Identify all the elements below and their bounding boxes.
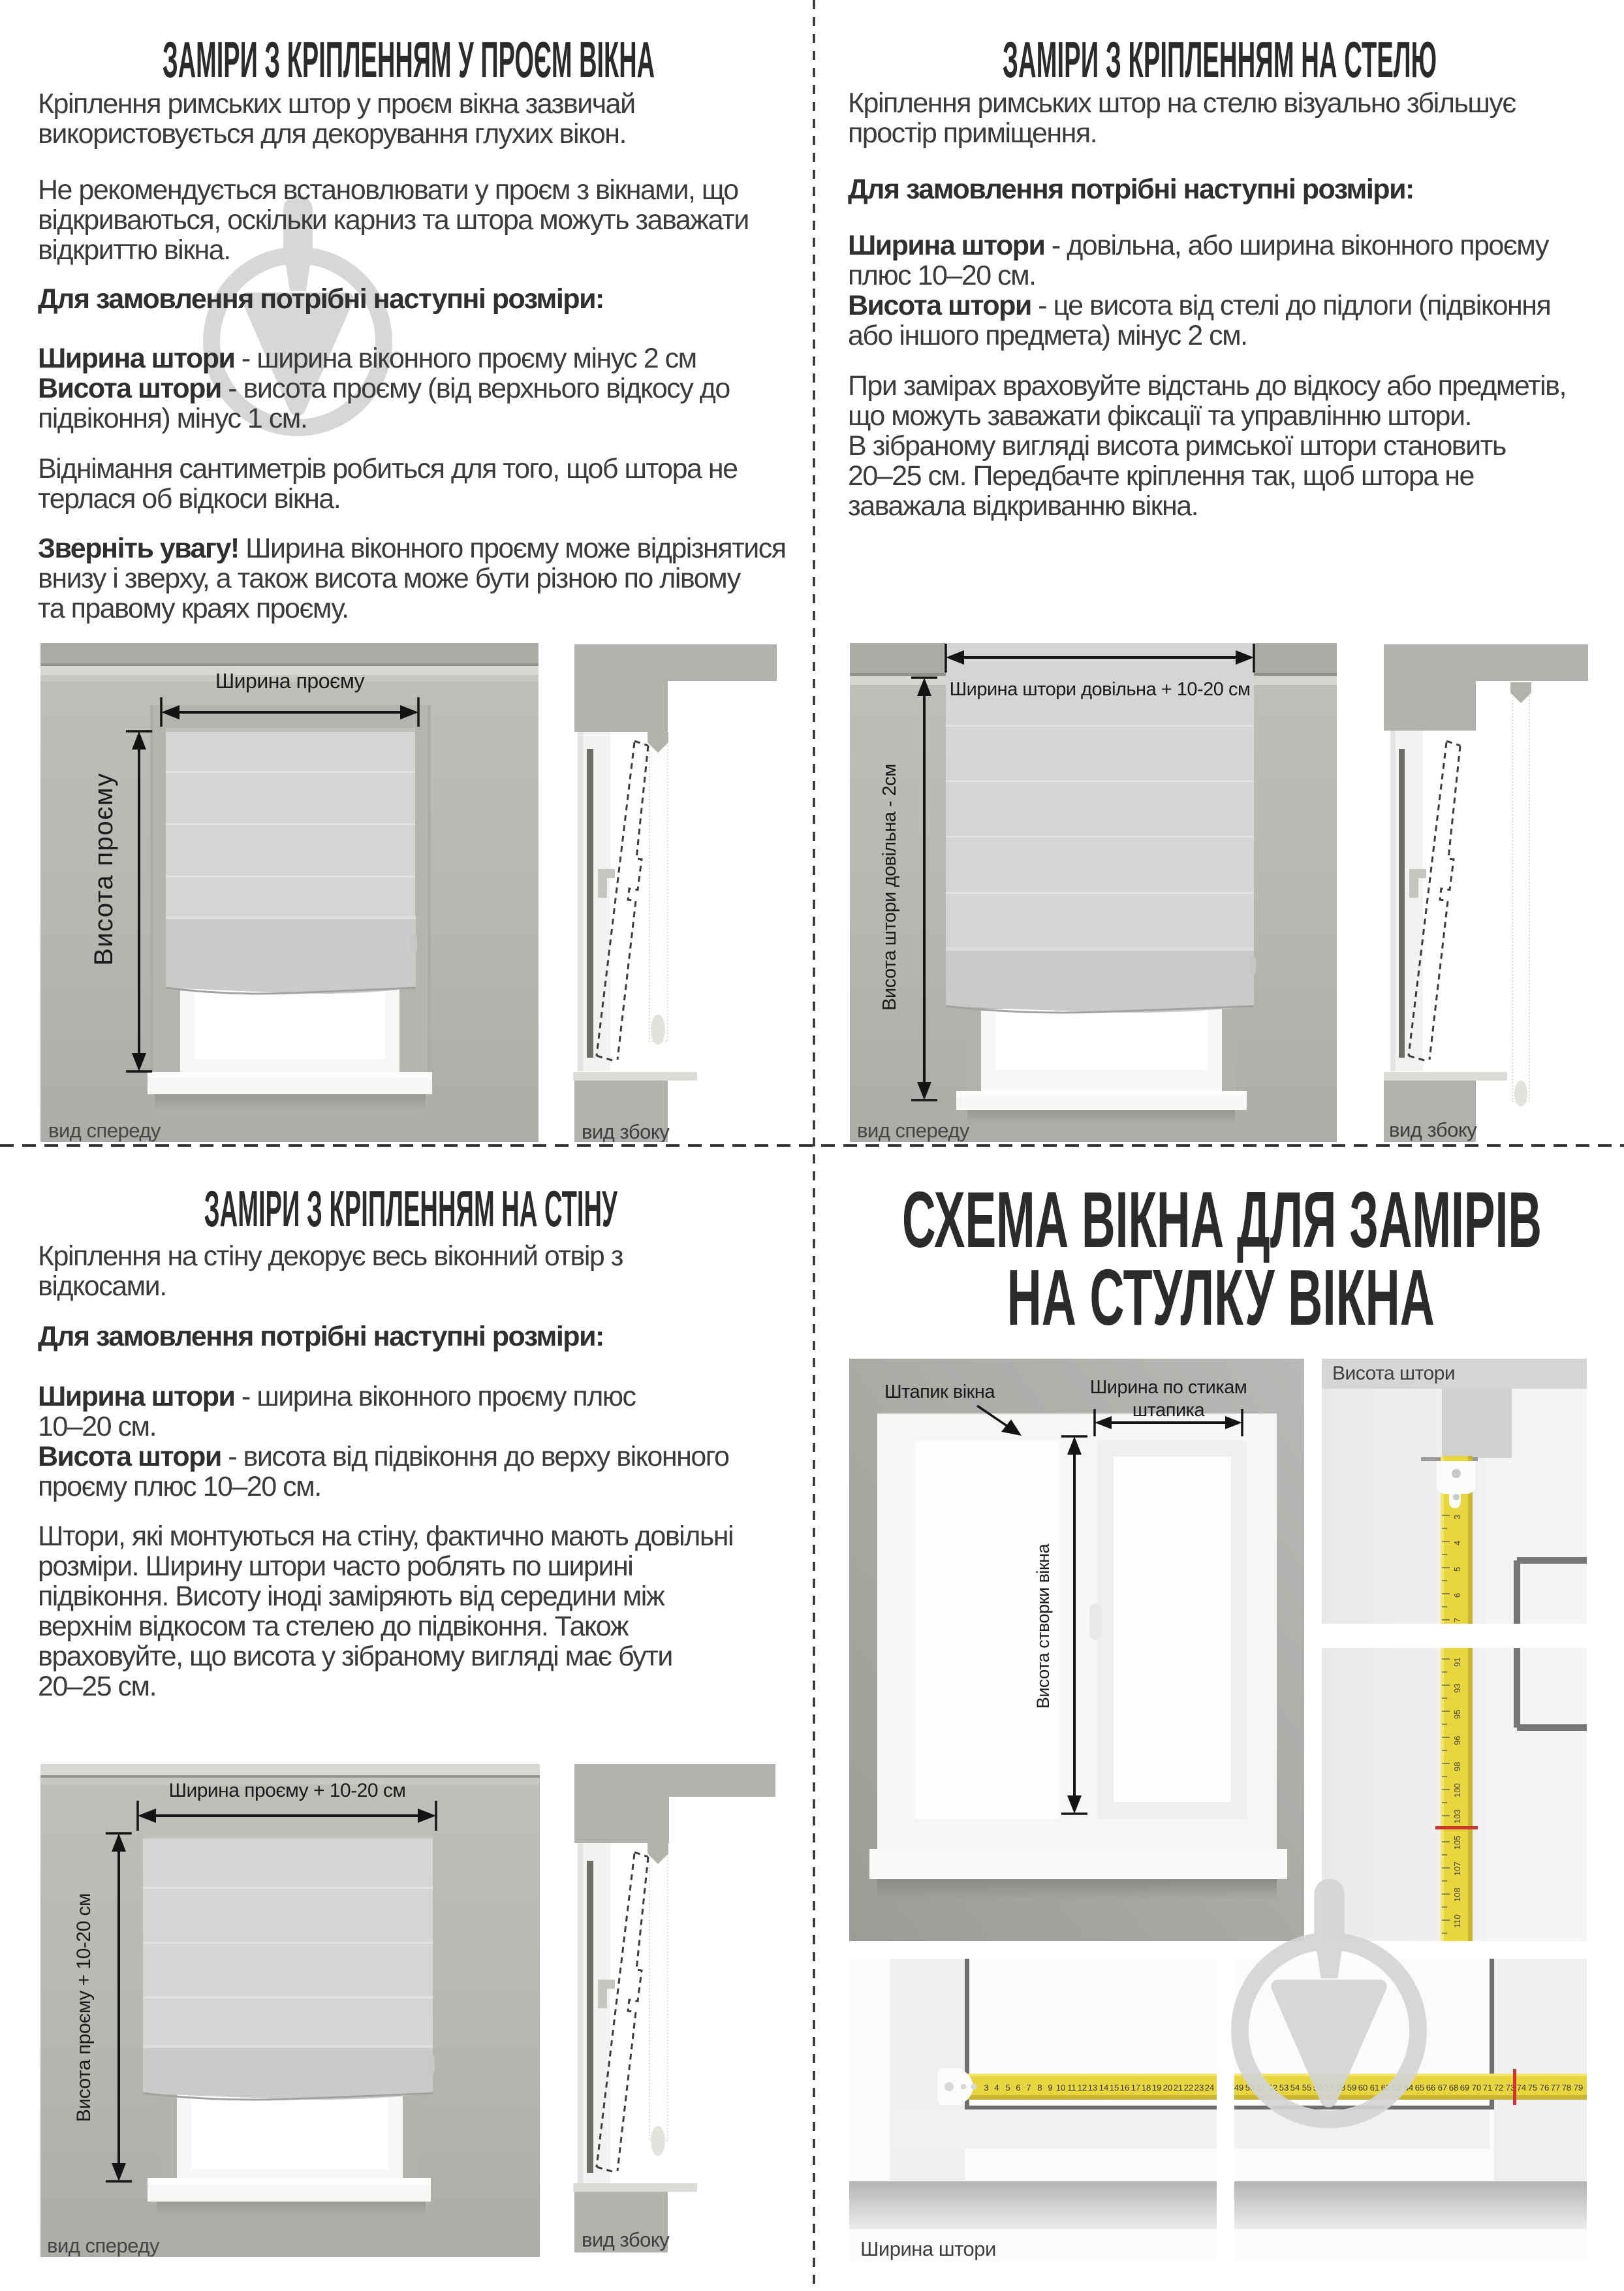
svg-text:12: 12 — [1078, 2083, 1087, 2093]
svg-text:вид спереду: вид спереду — [47, 2234, 160, 2257]
svg-text:5: 5 — [1005, 2083, 1010, 2093]
svg-text:10: 10 — [1056, 2083, 1065, 2093]
svg-text:22: 22 — [1184, 2083, 1193, 2093]
svg-text:Штапик вікна: Штапик вікна — [884, 1382, 995, 1402]
svg-text:72: 72 — [1494, 2083, 1503, 2093]
svg-text:107: 107 — [1452, 1861, 1462, 1876]
svg-text:91: 91 — [1452, 1658, 1462, 1667]
svg-text:вид спереду: вид спереду — [857, 1119, 970, 1142]
svg-text:вид збоку: вид збоку — [582, 1120, 670, 1142]
svg-text:штапика: штапика — [1132, 1400, 1206, 1421]
svg-text:вид спереду: вид спереду — [48, 1119, 161, 1142]
svg-text:16: 16 — [1120, 2083, 1129, 2093]
svg-text:Ширина штори довільна + 10-20: Ширина штори довільна + 10-20 см — [950, 679, 1251, 700]
svg-text:98: 98 — [1452, 1762, 1462, 1771]
svg-text:4: 4 — [1452, 1541, 1462, 1545]
svg-text:96: 96 — [1452, 1736, 1462, 1745]
svg-text:Висота проєму + 10-20 см: Висота проєму + 10-20 см — [73, 1893, 95, 2122]
svg-text:95: 95 — [1452, 1710, 1462, 1719]
svg-text:78: 78 — [1562, 2083, 1571, 2093]
svg-text:Ширина проєму: Ширина проєму — [215, 669, 365, 693]
svg-text:7: 7 — [1026, 2083, 1031, 2093]
svg-text:9: 9 — [1048, 2083, 1052, 2093]
svg-text:5: 5 — [1452, 1567, 1462, 1572]
svg-text:7: 7 — [1452, 1618, 1462, 1622]
svg-text:13: 13 — [1088, 2083, 1097, 2093]
svg-text:4: 4 — [994, 2083, 999, 2093]
svg-text:Ширина штори: Ширина штори — [860, 2237, 996, 2260]
svg-text:24: 24 — [1205, 2083, 1214, 2093]
svg-text:71: 71 — [1483, 2083, 1492, 2093]
svg-text:18: 18 — [1142, 2083, 1151, 2093]
svg-text:17: 17 — [1131, 2083, 1140, 2093]
svg-text:103: 103 — [1452, 1809, 1462, 1824]
svg-text:Висота штори: Висота штори — [1332, 1363, 1455, 1384]
svg-text:11: 11 — [1067, 2083, 1076, 2093]
svg-text:вид збоку: вид збоку — [582, 2228, 670, 2251]
svg-text:23: 23 — [1195, 2083, 1204, 2093]
svg-text:Висота проєму: Висота проєму — [89, 772, 118, 966]
svg-text:75: 75 — [1528, 2083, 1537, 2093]
svg-text:6: 6 — [1016, 2083, 1020, 2093]
svg-text:110: 110 — [1452, 1914, 1462, 1928]
svg-text:Ширина проєму + 10-20 см: Ширина проєму + 10-20 см — [168, 1780, 405, 1801]
svg-text:Ширина по стикам: Ширина по стикам — [1090, 1377, 1247, 1398]
svg-text:3: 3 — [984, 2083, 988, 2093]
svg-text:74: 74 — [1517, 2083, 1526, 2093]
svg-text:6: 6 — [1452, 1593, 1462, 1598]
svg-text:93: 93 — [1452, 1684, 1462, 1693]
svg-text:14: 14 — [1099, 2083, 1108, 2093]
svg-text:20: 20 — [1163, 2083, 1172, 2093]
svg-text:Висота створки вікна: Висота створки вікна — [1033, 1543, 1053, 1709]
svg-text:69: 69 — [1460, 2083, 1469, 2093]
svg-text:15: 15 — [1110, 2083, 1119, 2093]
svg-text:Висота штори довільна - 2см: Висота штори довільна - 2см — [879, 764, 900, 1011]
svg-text:79: 79 — [1574, 2083, 1583, 2093]
svg-text:3: 3 — [1452, 1515, 1462, 1519]
svg-text:70: 70 — [1472, 2083, 1481, 2093]
svg-text:68: 68 — [1449, 2083, 1458, 2093]
svg-text:вид збоку: вид збоку — [1389, 1118, 1477, 1141]
svg-text:105: 105 — [1452, 1835, 1462, 1850]
svg-text:19: 19 — [1152, 2083, 1161, 2093]
svg-text:100: 100 — [1452, 1783, 1462, 1797]
svg-text:108: 108 — [1452, 1888, 1462, 1902]
svg-text:77: 77 — [1551, 2083, 1560, 2093]
svg-text:8: 8 — [1037, 2083, 1042, 2093]
svg-text:67: 67 — [1438, 2083, 1447, 2093]
svg-text:76: 76 — [1540, 2083, 1549, 2093]
svg-text:21: 21 — [1174, 2083, 1183, 2093]
